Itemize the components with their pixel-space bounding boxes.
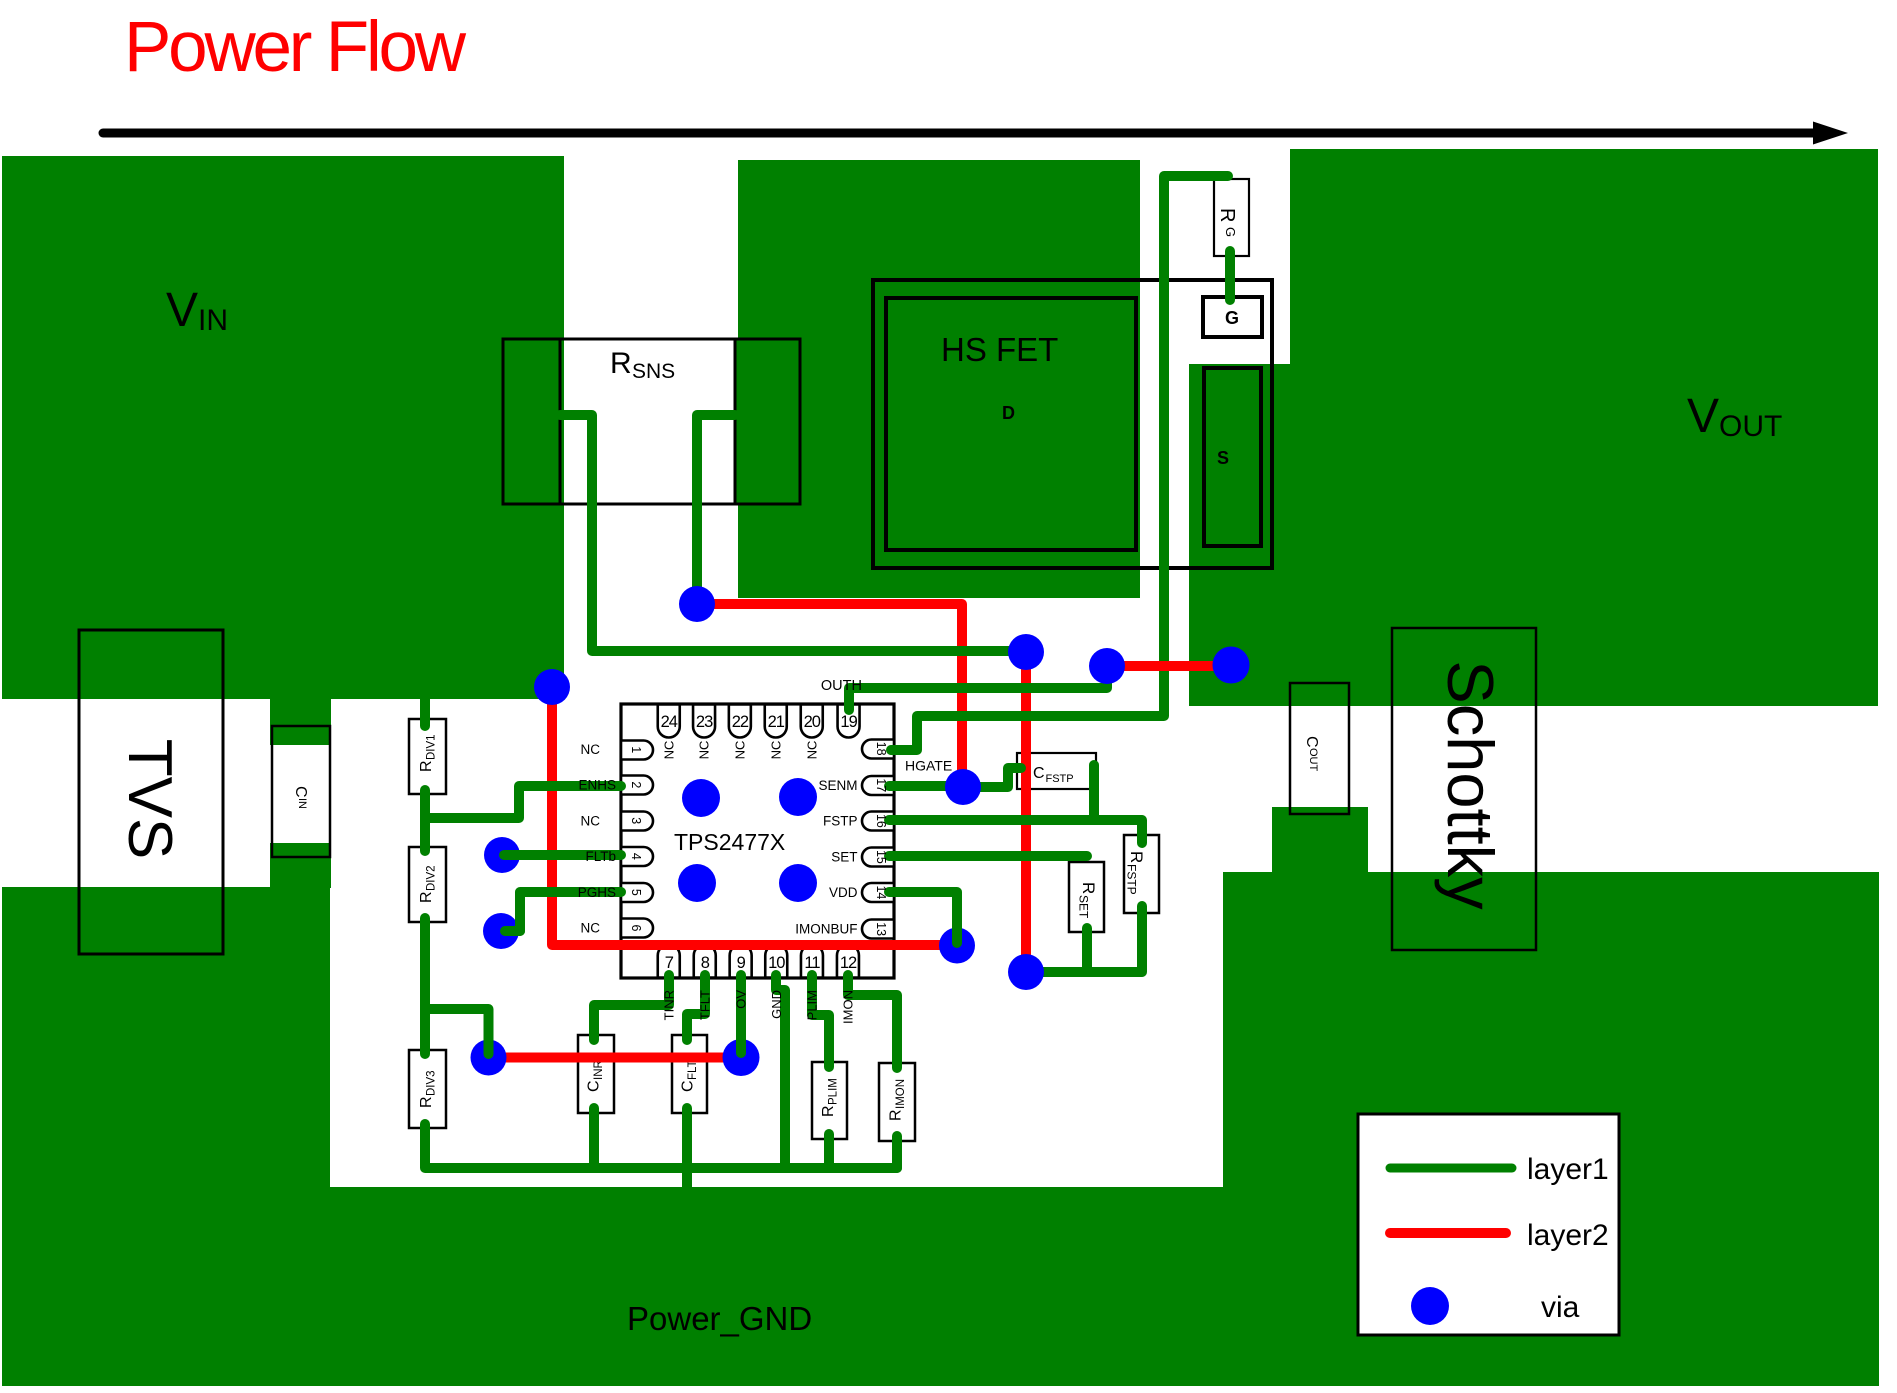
svg-text:R: R <box>418 1096 435 1108</box>
svg-text:INR: INR <box>593 1060 605 1080</box>
svg-text:TFLT: TFLT <box>698 990 713 1020</box>
svg-text:SNS: SNS <box>632 360 675 383</box>
svg-text:R: R <box>610 347 632 380</box>
svg-text:17: 17 <box>874 778 888 792</box>
svg-text:OUT: OUT <box>1307 748 1319 772</box>
svg-text:OUT: OUT <box>1719 410 1782 443</box>
svg-text:4: 4 <box>629 853 643 860</box>
svg-text:SET: SET <box>831 850 857 865</box>
svg-text:12: 12 <box>840 954 857 972</box>
svg-text:FSTP: FSTP <box>823 814 858 829</box>
svg-text:19: 19 <box>840 713 857 731</box>
svg-text:G: G <box>1225 308 1239 328</box>
svg-text:VDD: VDD <box>829 885 858 900</box>
svg-text:13: 13 <box>874 922 888 936</box>
svg-text:Power_GND: Power_GND <box>627 1300 812 1337</box>
svg-text:R: R <box>820 1105 837 1117</box>
svg-text:R: R <box>418 760 435 772</box>
svg-text:23: 23 <box>696 713 713 731</box>
svg-text:2: 2 <box>629 781 643 788</box>
svg-text:IMON: IMON <box>841 990 856 1024</box>
svg-text:IMONBUF: IMONBUF <box>795 922 857 937</box>
svg-text:V: V <box>166 284 198 337</box>
svg-text:21: 21 <box>768 713 785 731</box>
svg-text:IN: IN <box>296 798 308 809</box>
svg-text:FLT: FLT <box>687 1060 699 1080</box>
svg-text:C: C <box>1303 736 1320 748</box>
svg-text:TINR: TINR <box>662 990 677 1020</box>
svg-text:PLIM: PLIM <box>805 990 820 1020</box>
svg-text:SET: SET <box>1077 895 1091 919</box>
svg-text:10: 10 <box>768 954 785 972</box>
svg-text:PGHS: PGHS <box>578 885 616 900</box>
svg-text:22: 22 <box>732 713 749 731</box>
svg-text:16: 16 <box>874 814 888 828</box>
svg-text:DIV1: DIV1 <box>426 734 438 760</box>
svg-text:14: 14 <box>874 885 888 899</box>
svg-text:18: 18 <box>874 742 888 756</box>
svg-text:R: R <box>1216 208 1238 222</box>
svg-text:6: 6 <box>629 925 643 932</box>
svg-text:R: R <box>1079 882 1098 894</box>
svg-text:ENHS: ENHS <box>578 778 616 793</box>
svg-text:11: 11 <box>804 954 820 972</box>
svg-text:C: C <box>292 786 309 798</box>
svg-text:C: C <box>1033 765 1045 782</box>
svg-text:9: 9 <box>737 954 746 972</box>
svg-text:NC: NC <box>581 921 601 936</box>
svg-text:GND: GND <box>769 990 784 1019</box>
svg-text:R: R <box>418 891 435 903</box>
svg-text:NC: NC <box>804 741 819 760</box>
svg-text:Schottky: Schottky <box>1434 660 1507 910</box>
svg-text:DIV2: DIV2 <box>426 865 438 891</box>
svg-text:R: R <box>888 1109 905 1121</box>
svg-text:NC: NC <box>661 741 676 760</box>
svg-text:IMON: IMON <box>895 1079 907 1109</box>
svg-text:NC: NC <box>581 814 601 829</box>
svg-text:G: G <box>1223 227 1238 237</box>
svg-text:FSTP: FSTP <box>1046 773 1074 785</box>
svg-text:TVS: TVS <box>115 739 184 860</box>
svg-text:IN: IN <box>198 304 228 337</box>
svg-text:layer1: layer1 <box>1527 1153 1609 1186</box>
svg-text:24: 24 <box>661 713 678 731</box>
svg-text:layer2: layer2 <box>1527 1219 1609 1252</box>
svg-text:HS FET: HS FET <box>941 331 1058 368</box>
svg-text:PLIM: PLIM <box>828 1078 840 1105</box>
svg-text:R: R <box>1127 851 1146 863</box>
svg-text:TPS2477X: TPS2477X <box>674 829 785 855</box>
svg-text:20: 20 <box>804 713 821 731</box>
svg-text:C: C <box>680 1080 697 1092</box>
svg-text:3: 3 <box>629 817 643 824</box>
svg-text:NC: NC <box>732 741 747 760</box>
svg-text:NC: NC <box>697 741 712 760</box>
svg-text:OUTH: OUTH <box>821 678 862 694</box>
svg-text:DIV3: DIV3 <box>426 1070 438 1096</box>
svg-text:FSTP: FSTP <box>1125 864 1139 895</box>
svg-text:FLTb: FLTb <box>585 849 616 864</box>
svg-text:7: 7 <box>665 954 674 972</box>
svg-text:C: C <box>586 1080 603 1092</box>
svg-text:S: S <box>1217 448 1229 468</box>
svg-text:SENM: SENM <box>818 778 857 793</box>
svg-text:OV: OV <box>733 990 748 1009</box>
svg-text:8: 8 <box>701 954 710 972</box>
svg-text:Power Flow: Power Flow <box>124 8 467 87</box>
svg-text:via: via <box>1541 1291 1580 1324</box>
svg-text:5: 5 <box>629 889 643 896</box>
svg-text:1: 1 <box>629 746 643 753</box>
svg-text:NC: NC <box>768 741 783 760</box>
svg-text:15: 15 <box>874 850 888 864</box>
svg-text:HGATE: HGATE <box>905 758 952 774</box>
svg-text:D: D <box>1002 403 1015 423</box>
svg-text:V: V <box>1687 390 1719 443</box>
svg-text:NC: NC <box>581 742 601 757</box>
